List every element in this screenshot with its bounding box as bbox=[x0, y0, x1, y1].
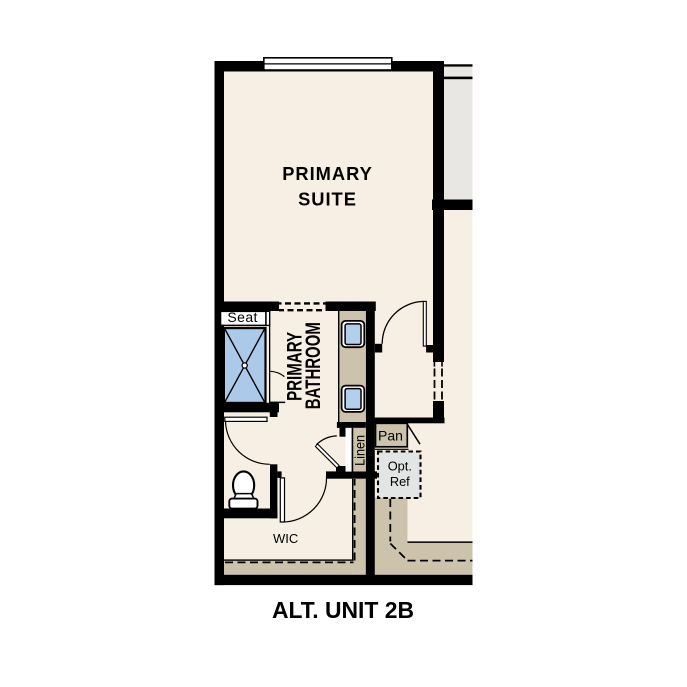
svg-text:Opt.: Opt. bbox=[388, 459, 412, 474]
svg-text:ALT. UNIT 2B: ALT. UNIT 2B bbox=[272, 597, 414, 623]
svg-text:BATHROOM: BATHROOM bbox=[302, 322, 325, 409]
svg-text:Linen: Linen bbox=[352, 435, 367, 466]
svg-text:Pan: Pan bbox=[378, 427, 403, 443]
svg-text:WIC: WIC bbox=[273, 531, 298, 546]
svg-text:PRIMARY: PRIMARY bbox=[282, 163, 373, 184]
svg-text:Ref: Ref bbox=[390, 474, 410, 489]
svg-text:Seat: Seat bbox=[227, 309, 257, 325]
svg-text:SUITE: SUITE bbox=[298, 188, 357, 209]
